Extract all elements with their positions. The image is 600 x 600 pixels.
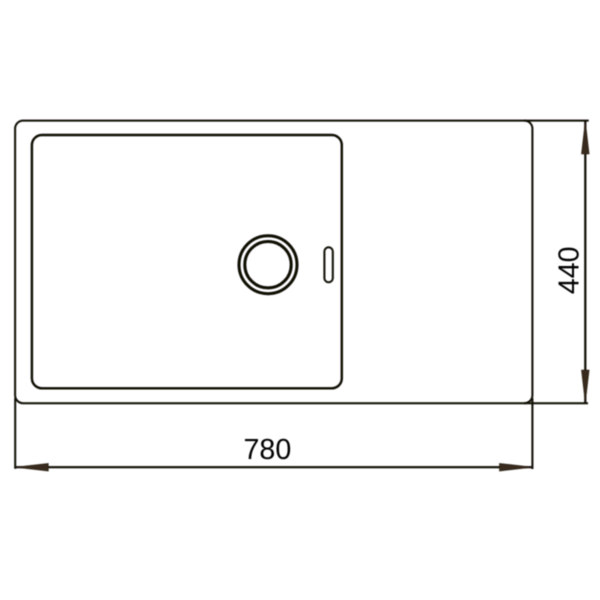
svg-text:780: 780 <box>244 434 292 466</box>
svg-text:440: 440 <box>554 246 586 294</box>
